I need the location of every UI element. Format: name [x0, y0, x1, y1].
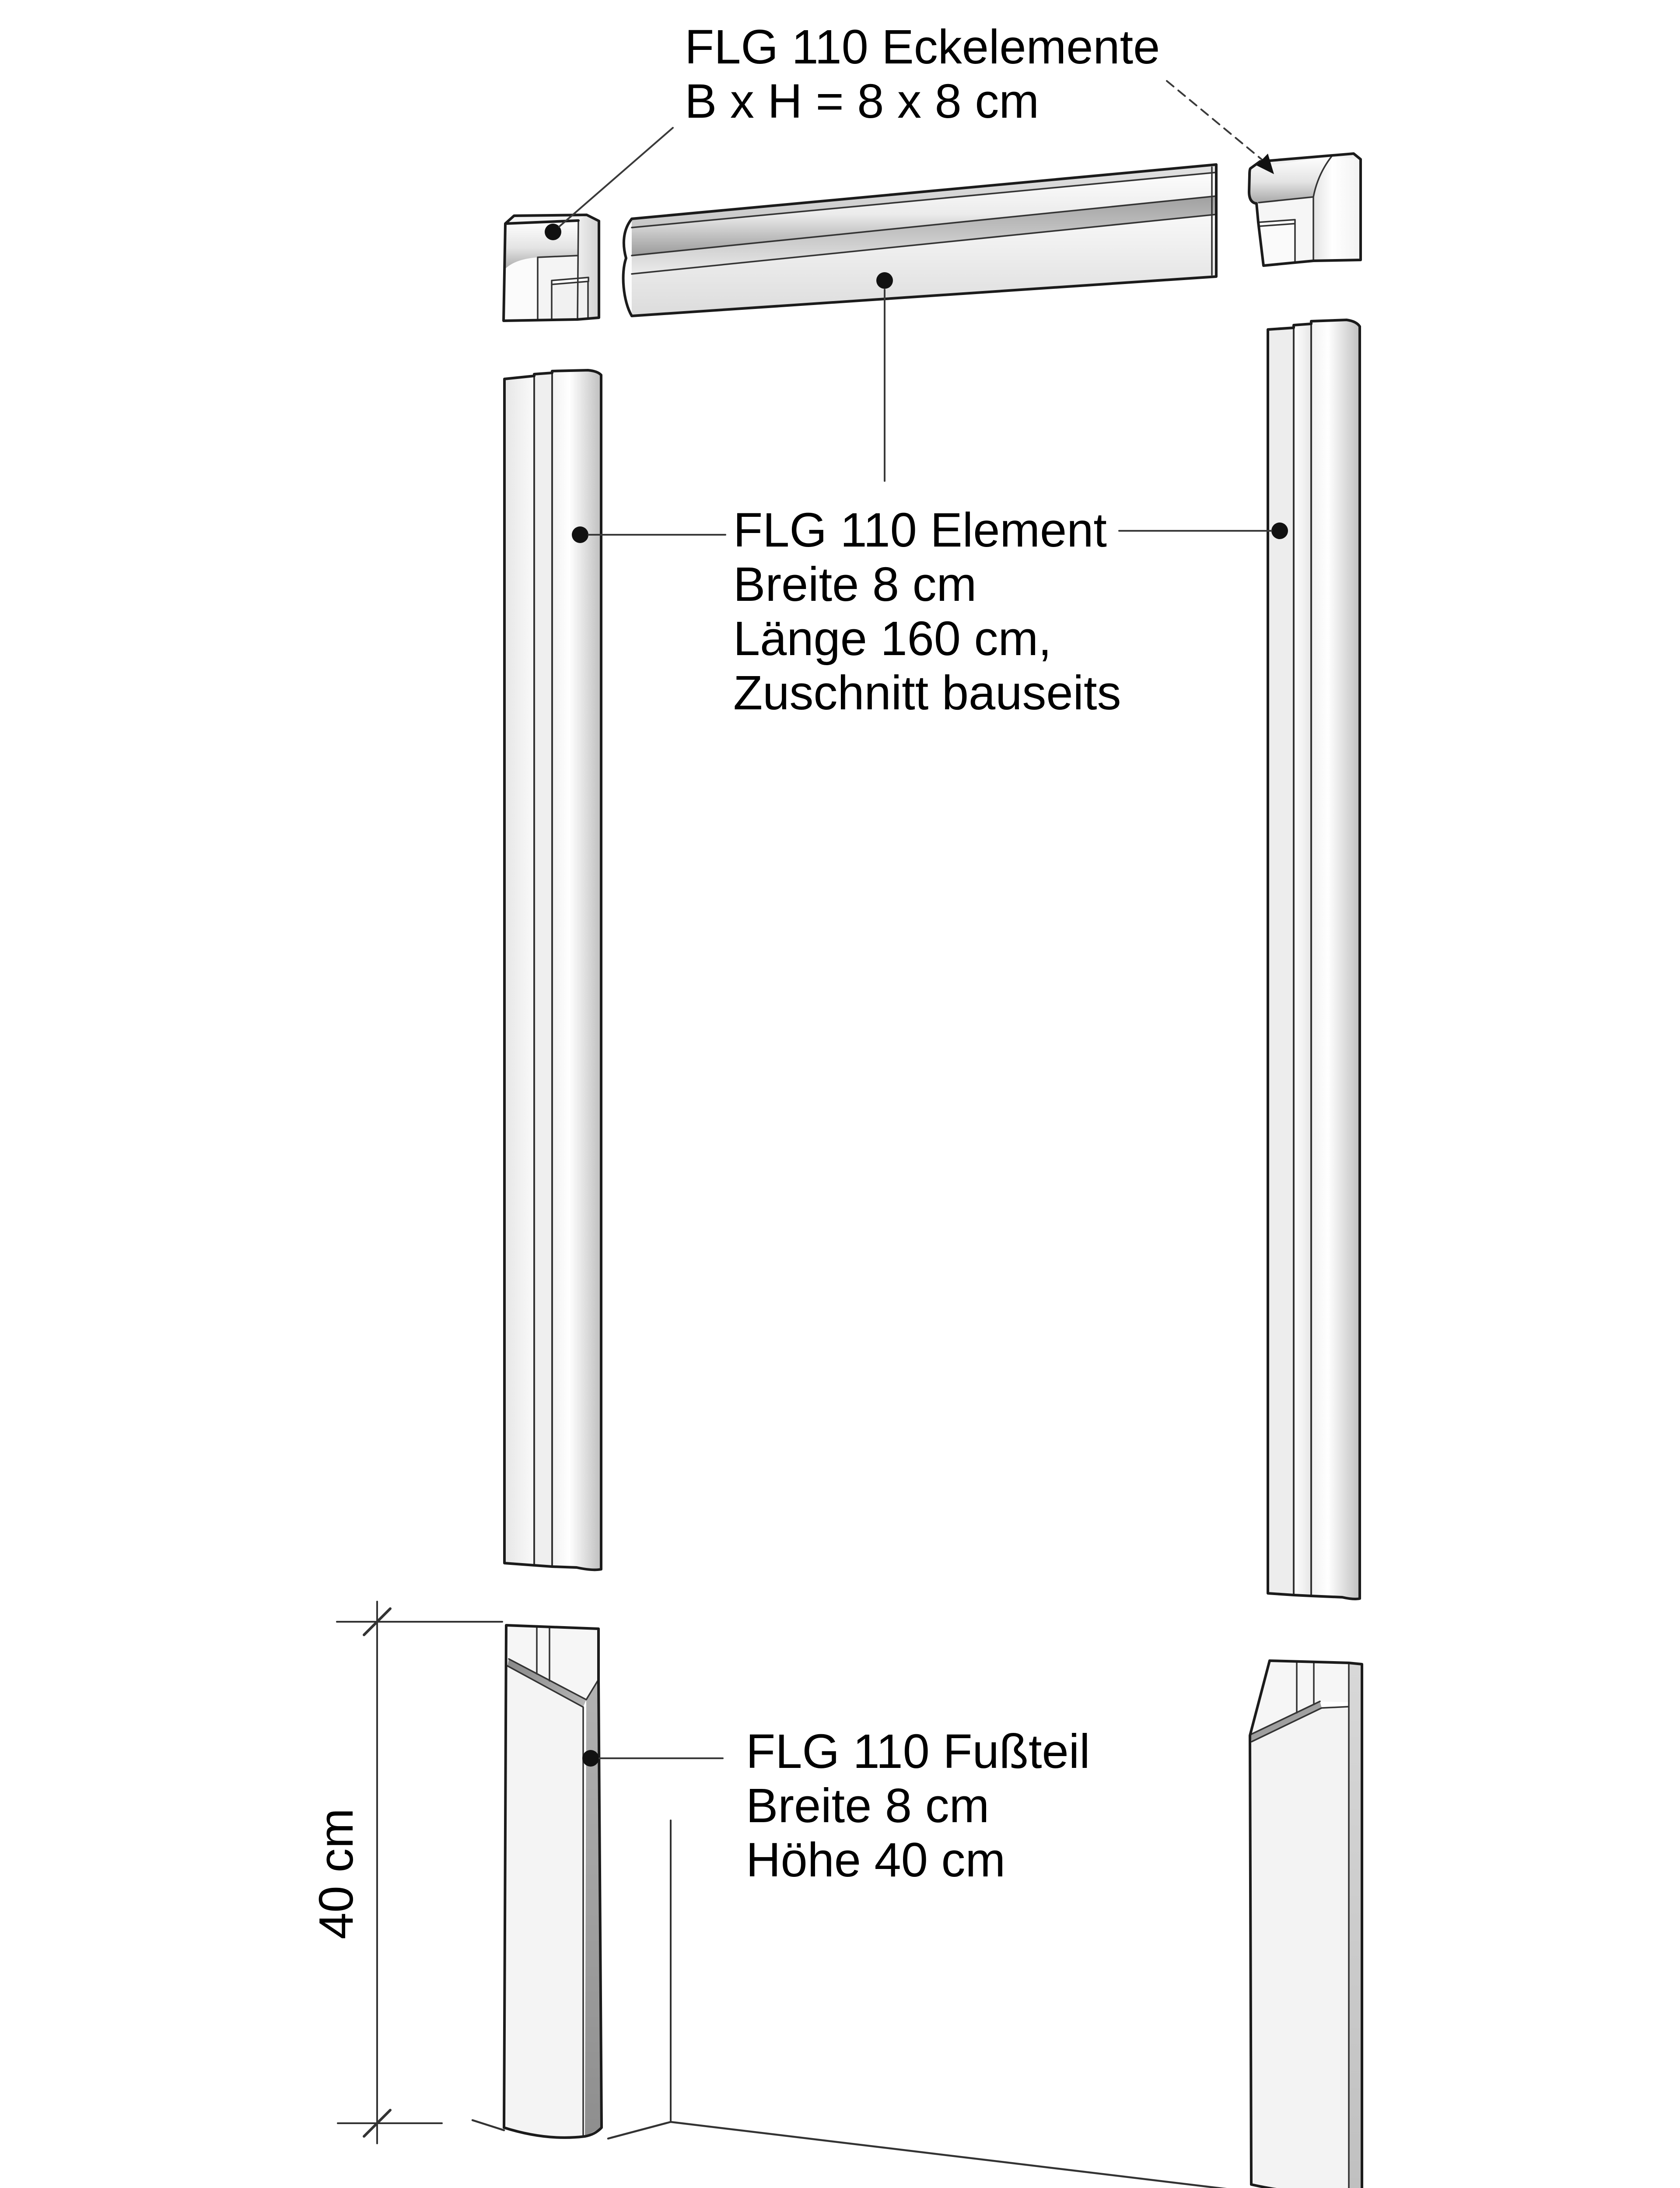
leader-dot-icon	[1271, 522, 1288, 539]
label-element-line3: Länge 160 cm,	[733, 612, 1052, 666]
diagram-canvas: 40 cm FLG 110 Eckelem	[0, 0, 1680, 2188]
leader-dot-icon	[876, 272, 893, 289]
corner-element-left	[504, 215, 599, 321]
label-eckelemente-line1: FLG 110 Eckelemente	[685, 20, 1160, 74]
corner-left-block-front	[552, 281, 588, 320]
label-fussteil-line1: FLG 110 Fußteil	[746, 1725, 1090, 1778]
pilaster-right-strip-middle	[1294, 324, 1311, 1596]
pilaster-right-strip-front	[1311, 320, 1360, 1599]
label-fussteil-line2: Breite 8 cm	[746, 1779, 989, 1833]
floor-line-left-outer	[472, 2120, 504, 2130]
foot-element-left	[504, 1625, 723, 2138]
leader-dot-icon	[582, 1750, 599, 1767]
corner-right-block-front	[1259, 224, 1295, 266]
leader-dot-icon	[572, 526, 588, 543]
lintel-element	[623, 165, 1216, 481]
label-fussteil-line3: Höhe 40 cm	[746, 1833, 1005, 1887]
foot-right-side-face	[1349, 1663, 1362, 2188]
dimension-40cm: 40 cm	[309, 1602, 502, 2143]
label-element: FLG 110 Element Breite 8 cm Länge 160 cm…	[733, 503, 1121, 720]
label-element-line1: FLG 110 Element	[733, 503, 1107, 557]
pilaster-left	[504, 370, 725, 1570]
label-fussteil: FLG 110 Fußteil Breite 8 cm Höhe 40 cm	[746, 1725, 1090, 1887]
pilaster-left-strip-outer	[504, 376, 534, 1565]
pilaster-right	[1119, 320, 1360, 1599]
pilaster-right-strip-inner	[1268, 328, 1294, 1595]
diagram-page: 40 cm FLG 110 Eckelem	[0, 0, 1680, 2188]
label-element-line2: Breite 8 cm	[733, 558, 976, 611]
pilaster-left-strip-middle	[534, 373, 552, 1567]
floor-line-left-inner	[608, 2122, 671, 2139]
leader-line-eckelement-right	[1167, 81, 1263, 160]
pilaster-left-strip-front	[552, 370, 601, 1570]
foot-right-front-face	[1251, 1707, 1349, 2188]
dimension-label: 40 cm	[309, 1808, 363, 1939]
leader-line-eckelement-left	[559, 128, 673, 227]
corner-element-right	[1249, 154, 1361, 266]
floor-line-right-inner	[671, 2122, 1251, 2188]
label-element-line4: Zuschnitt bauseits	[733, 666, 1121, 720]
foot-element-right	[1250, 1661, 1362, 2188]
label-eckelemente-line2: B x H = 8 x 8 cm	[685, 74, 1039, 128]
foot-left-front-face	[504, 1666, 584, 2137]
